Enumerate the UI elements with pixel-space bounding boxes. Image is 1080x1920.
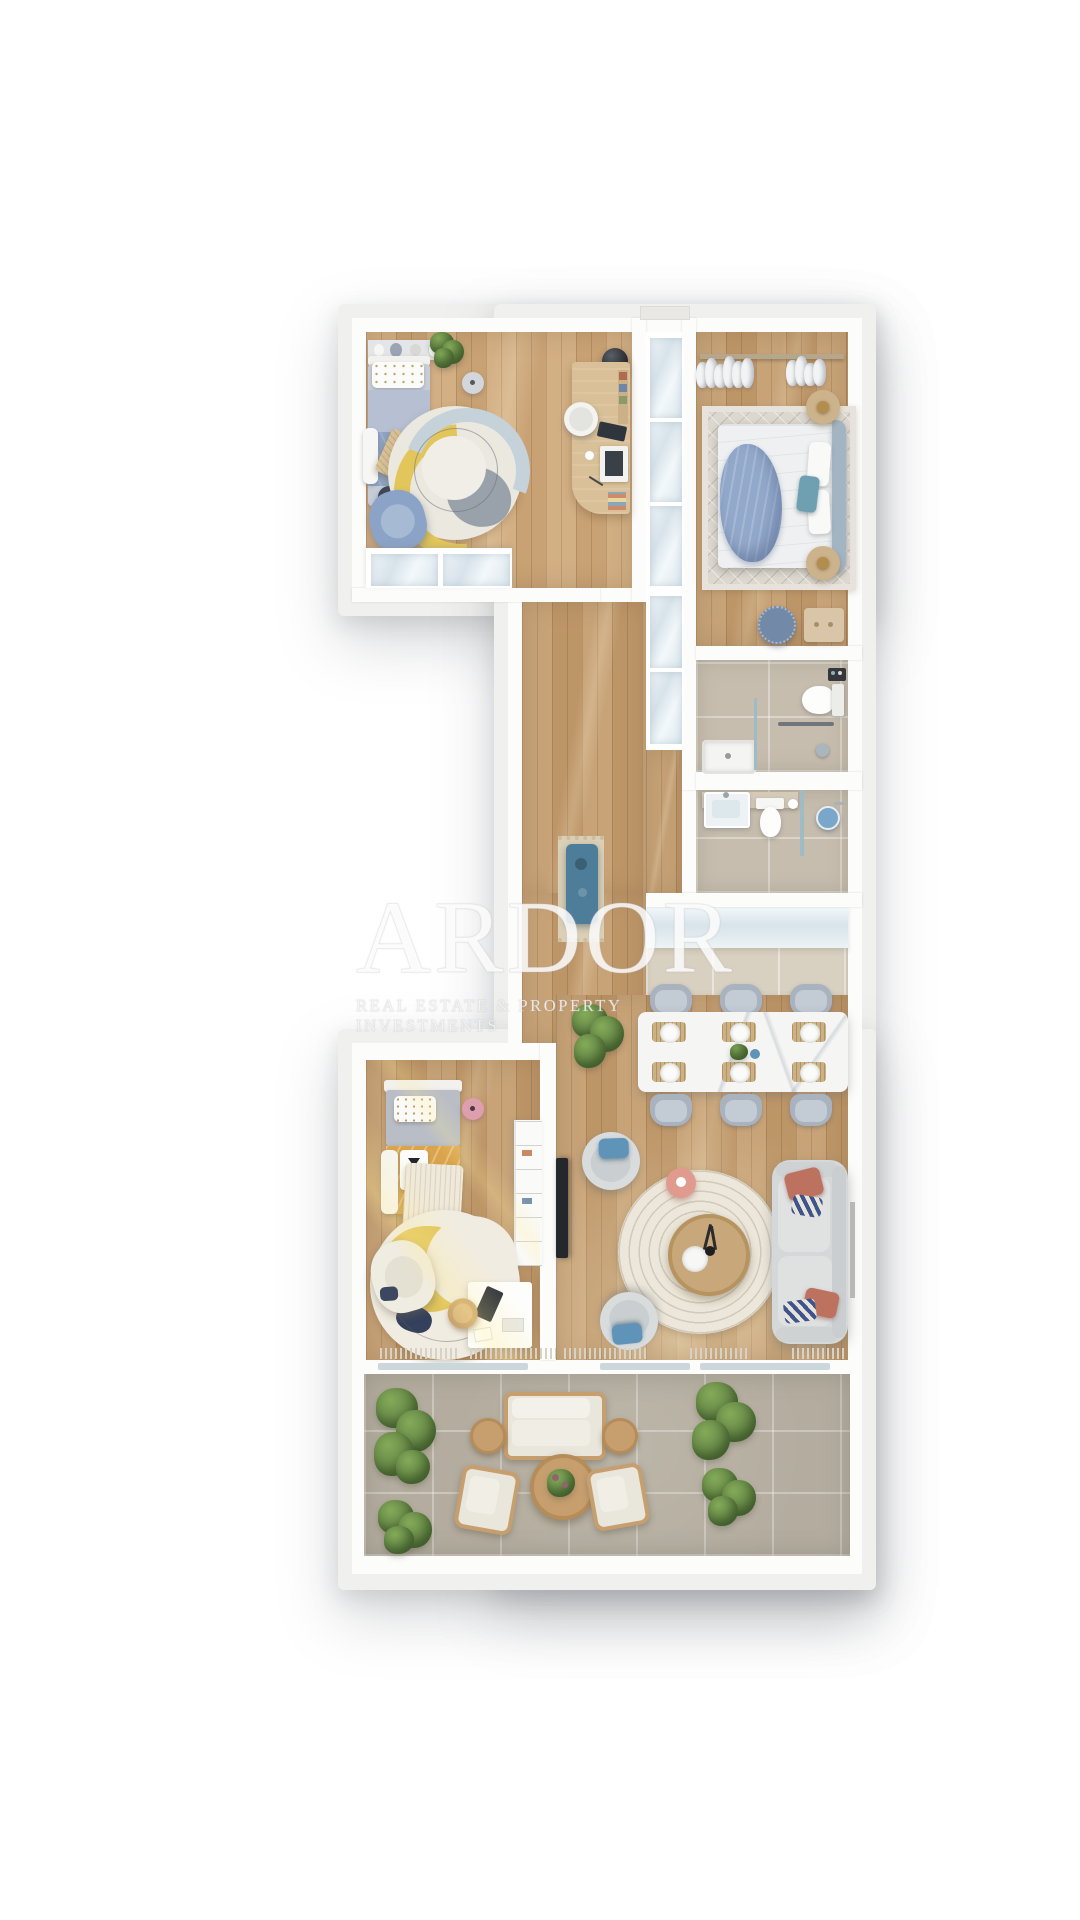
- navy-cushion: [380, 1286, 399, 1301]
- dining-chair: [720, 1094, 762, 1126]
- wall-bedroom2-living: [540, 1043, 556, 1360]
- terrace-door-glass: [600, 1363, 690, 1370]
- outdoor-coffee-table: [530, 1454, 596, 1520]
- wall-master-bottom: [696, 646, 862, 660]
- potted-plant: [430, 332, 466, 370]
- bath-shelf: [828, 668, 846, 681]
- rug-line: [414, 428, 498, 512]
- wall-kidsroom-bottom: [352, 588, 600, 602]
- kids-bed-pillow: [372, 362, 424, 388]
- table-lamp-icon: [817, 557, 829, 569]
- side-table-coral: [666, 1168, 696, 1198]
- terrace-bush: [378, 1496, 434, 1554]
- hall-console: [566, 844, 598, 924]
- desk-print: [608, 492, 626, 510]
- table-plant: [547, 1469, 575, 1497]
- frosted-panel: [648, 420, 684, 504]
- swivel-chair: [577, 1127, 646, 1196]
- sofa: [772, 1160, 848, 1344]
- frosted-panel: [648, 504, 684, 588]
- table-centerpiece: [730, 1044, 760, 1062]
- outdoor-armchair: [453, 1463, 521, 1536]
- towel-bar: [778, 722, 834, 726]
- frosted-panel: [369, 552, 440, 588]
- bathroom2: [696, 790, 848, 893]
- hall-nook-floor: [646, 750, 682, 893]
- entry-door: [640, 306, 690, 320]
- faucet-icon: [723, 792, 729, 798]
- ceiling-lamp-icon: [462, 372, 484, 394]
- wall-bathroom-divider: [696, 772, 862, 790]
- desk-cup: [584, 450, 595, 461]
- desk-book: [619, 396, 627, 404]
- terrace-door-glass: [378, 1363, 528, 1370]
- curtain-fringe: [564, 1348, 648, 1359]
- shower-glass: [800, 790, 804, 856]
- desk-keyboard: [502, 1318, 524, 1332]
- faucet-icon: [816, 744, 829, 757]
- outdoor-armchair: [585, 1462, 651, 1533]
- kids-wardrobe-band: [366, 548, 512, 588]
- placemat: [652, 1022, 686, 1042]
- striped-pillow: [783, 1298, 818, 1324]
- hanging-clothes: [700, 356, 784, 390]
- shelf-decor-bowl: [410, 344, 421, 356]
- placemat: [722, 1022, 756, 1042]
- desk-papers: [473, 1327, 493, 1343]
- desk-book: [619, 372, 627, 380]
- teal-cushion: [598, 1138, 629, 1159]
- dining-table: [638, 1012, 848, 1092]
- knit-pouf: [758, 606, 796, 644]
- floor-plant: [570, 1002, 626, 1074]
- terrace-bush: [692, 1382, 758, 1472]
- toilet: [760, 807, 781, 837]
- toilet-tank: [832, 684, 844, 716]
- kitchen-counter: [646, 907, 848, 950]
- master-bedroom: [696, 332, 848, 646]
- sofa-arm: [776, 1327, 838, 1342]
- floor-plan-render: ARDOR REAL ESTATE & PROPERTY INVESTMENTS: [0, 0, 1080, 1920]
- placemat: [722, 1062, 756, 1082]
- shower-head-icon: [816, 806, 840, 830]
- wall-master-left: [682, 318, 696, 790]
- desk-laptop: [600, 446, 628, 482]
- hall-wardrobe-column: [646, 332, 682, 750]
- frosted-panel: [648, 336, 684, 420]
- frosted-panel: [441, 552, 512, 588]
- outdoor-sofa: [504, 1392, 606, 1460]
- terrace-bush: [700, 1462, 758, 1528]
- bedroom2-bed: [384, 1080, 464, 1230]
- frosted-panel: [648, 670, 684, 746]
- twig-vase: [705, 1246, 715, 1256]
- terrace: [364, 1374, 850, 1556]
- nightstand: [806, 390, 840, 424]
- dining-chair: [650, 1094, 692, 1126]
- hall-console-area: [558, 836, 606, 936]
- master-dresser: [804, 608, 844, 642]
- wall-kidsroom-right: [632, 318, 646, 602]
- outdoor-sofa-seat: [512, 1420, 590, 1446]
- coffee-table: [668, 1214, 750, 1296]
- terrace-bush: [374, 1388, 440, 1486]
- table-lamp-icon: [817, 401, 829, 413]
- bathroom1: [696, 660, 848, 772]
- frosted-panel: [648, 594, 684, 670]
- terrace-door-glass: [700, 1363, 830, 1370]
- kids-bed-side-pillow: [363, 428, 378, 484]
- teal-cushion: [611, 1322, 643, 1345]
- outdoor-side-table: [602, 1418, 638, 1454]
- bedroom2: [366, 1060, 540, 1360]
- nightstand: [806, 546, 840, 580]
- shower-tray: [702, 740, 756, 774]
- placemat: [652, 1062, 686, 1082]
- pink-wall-clock: [462, 1098, 484, 1120]
- wall-kitchen: [646, 893, 862, 907]
- curtain-fringe: [470, 1348, 556, 1359]
- shelf-decor-vase: [390, 343, 402, 357]
- bed2-side-pillow: [381, 1150, 398, 1214]
- desk-book: [619, 384, 627, 392]
- hanging-clothes: [790, 356, 846, 386]
- desk-chair: [562, 398, 603, 441]
- curtain-fringe: [380, 1348, 460, 1359]
- swivel-chair: [596, 1288, 662, 1354]
- bed2-pillow: [394, 1096, 436, 1122]
- kids-room: [366, 332, 632, 588]
- shower-glass: [754, 698, 757, 770]
- toilet-paper-icon: [788, 799, 798, 809]
- outdoor-sofa-back: [512, 1398, 590, 1418]
- placemat: [792, 1022, 826, 1042]
- placemat: [792, 1062, 826, 1082]
- toilet: [802, 686, 834, 714]
- bathroom-sink: [704, 792, 750, 828]
- shower-arm: [834, 802, 845, 805]
- shower-drain-icon: [725, 753, 731, 759]
- tv-panel: [556, 1158, 568, 1258]
- curtain-fringe: [792, 1348, 844, 1359]
- curtain-fringe: [690, 1348, 748, 1359]
- window-slit: [850, 1202, 855, 1298]
- shelf-decor-vase: [374, 344, 384, 356]
- outdoor-side-table: [470, 1418, 506, 1454]
- bedroom2-wardrobe: [514, 1120, 542, 1266]
- dining-chair: [790, 1094, 832, 1126]
